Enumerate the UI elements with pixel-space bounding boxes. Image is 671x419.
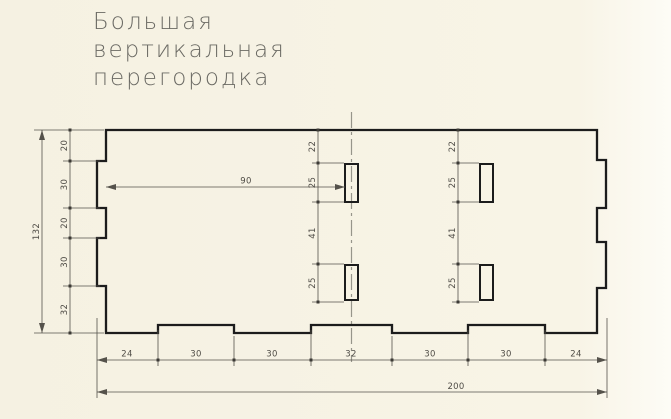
dim-overall-width: 200	[97, 382, 607, 392]
dim-chain-right: 22 25 41 25	[448, 129, 479, 304]
dim-chain-middle: 22 25 41 25	[308, 129, 344, 304]
dim-label: 30	[190, 350, 201, 360]
dim-chain-left: 20 30 20 30 32	[34, 129, 104, 335]
slot-right-lower	[480, 265, 493, 300]
dim-label: 22	[308, 141, 318, 152]
dim-label: 24	[121, 350, 132, 360]
dim-overall-height: 132	[32, 130, 42, 333]
dim-label: 20	[60, 217, 70, 228]
technical-drawing: 20 30 20 30 32 132 22 25 41 25 90	[0, 0, 671, 419]
dim-label: 30	[266, 350, 277, 360]
dim-label: 132	[32, 223, 42, 240]
dim-label: 41	[448, 227, 458, 238]
dim-label: 30	[424, 350, 435, 360]
dim-label: 30	[500, 350, 511, 360]
dim-label: 24	[570, 350, 581, 360]
dim-label: 41	[308, 227, 318, 238]
dim-label: 25	[448, 177, 458, 188]
dim-label: 25	[308, 177, 318, 188]
dim-label: 32	[345, 350, 356, 360]
dim-label: 200	[447, 382, 464, 392]
dim-label: 32	[60, 304, 70, 315]
dim-label: 30	[60, 179, 70, 190]
dim-label: 30	[60, 256, 70, 267]
dim-label: 22	[448, 141, 458, 152]
dim-label: 90	[240, 177, 251, 187]
dim-label: 25	[308, 277, 318, 288]
dim-label: 25	[448, 277, 458, 288]
page-background: Большая вертикальная перегородка	[0, 0, 671, 419]
dim-label: 20	[60, 140, 70, 151]
slot-right-upper	[480, 164, 493, 202]
